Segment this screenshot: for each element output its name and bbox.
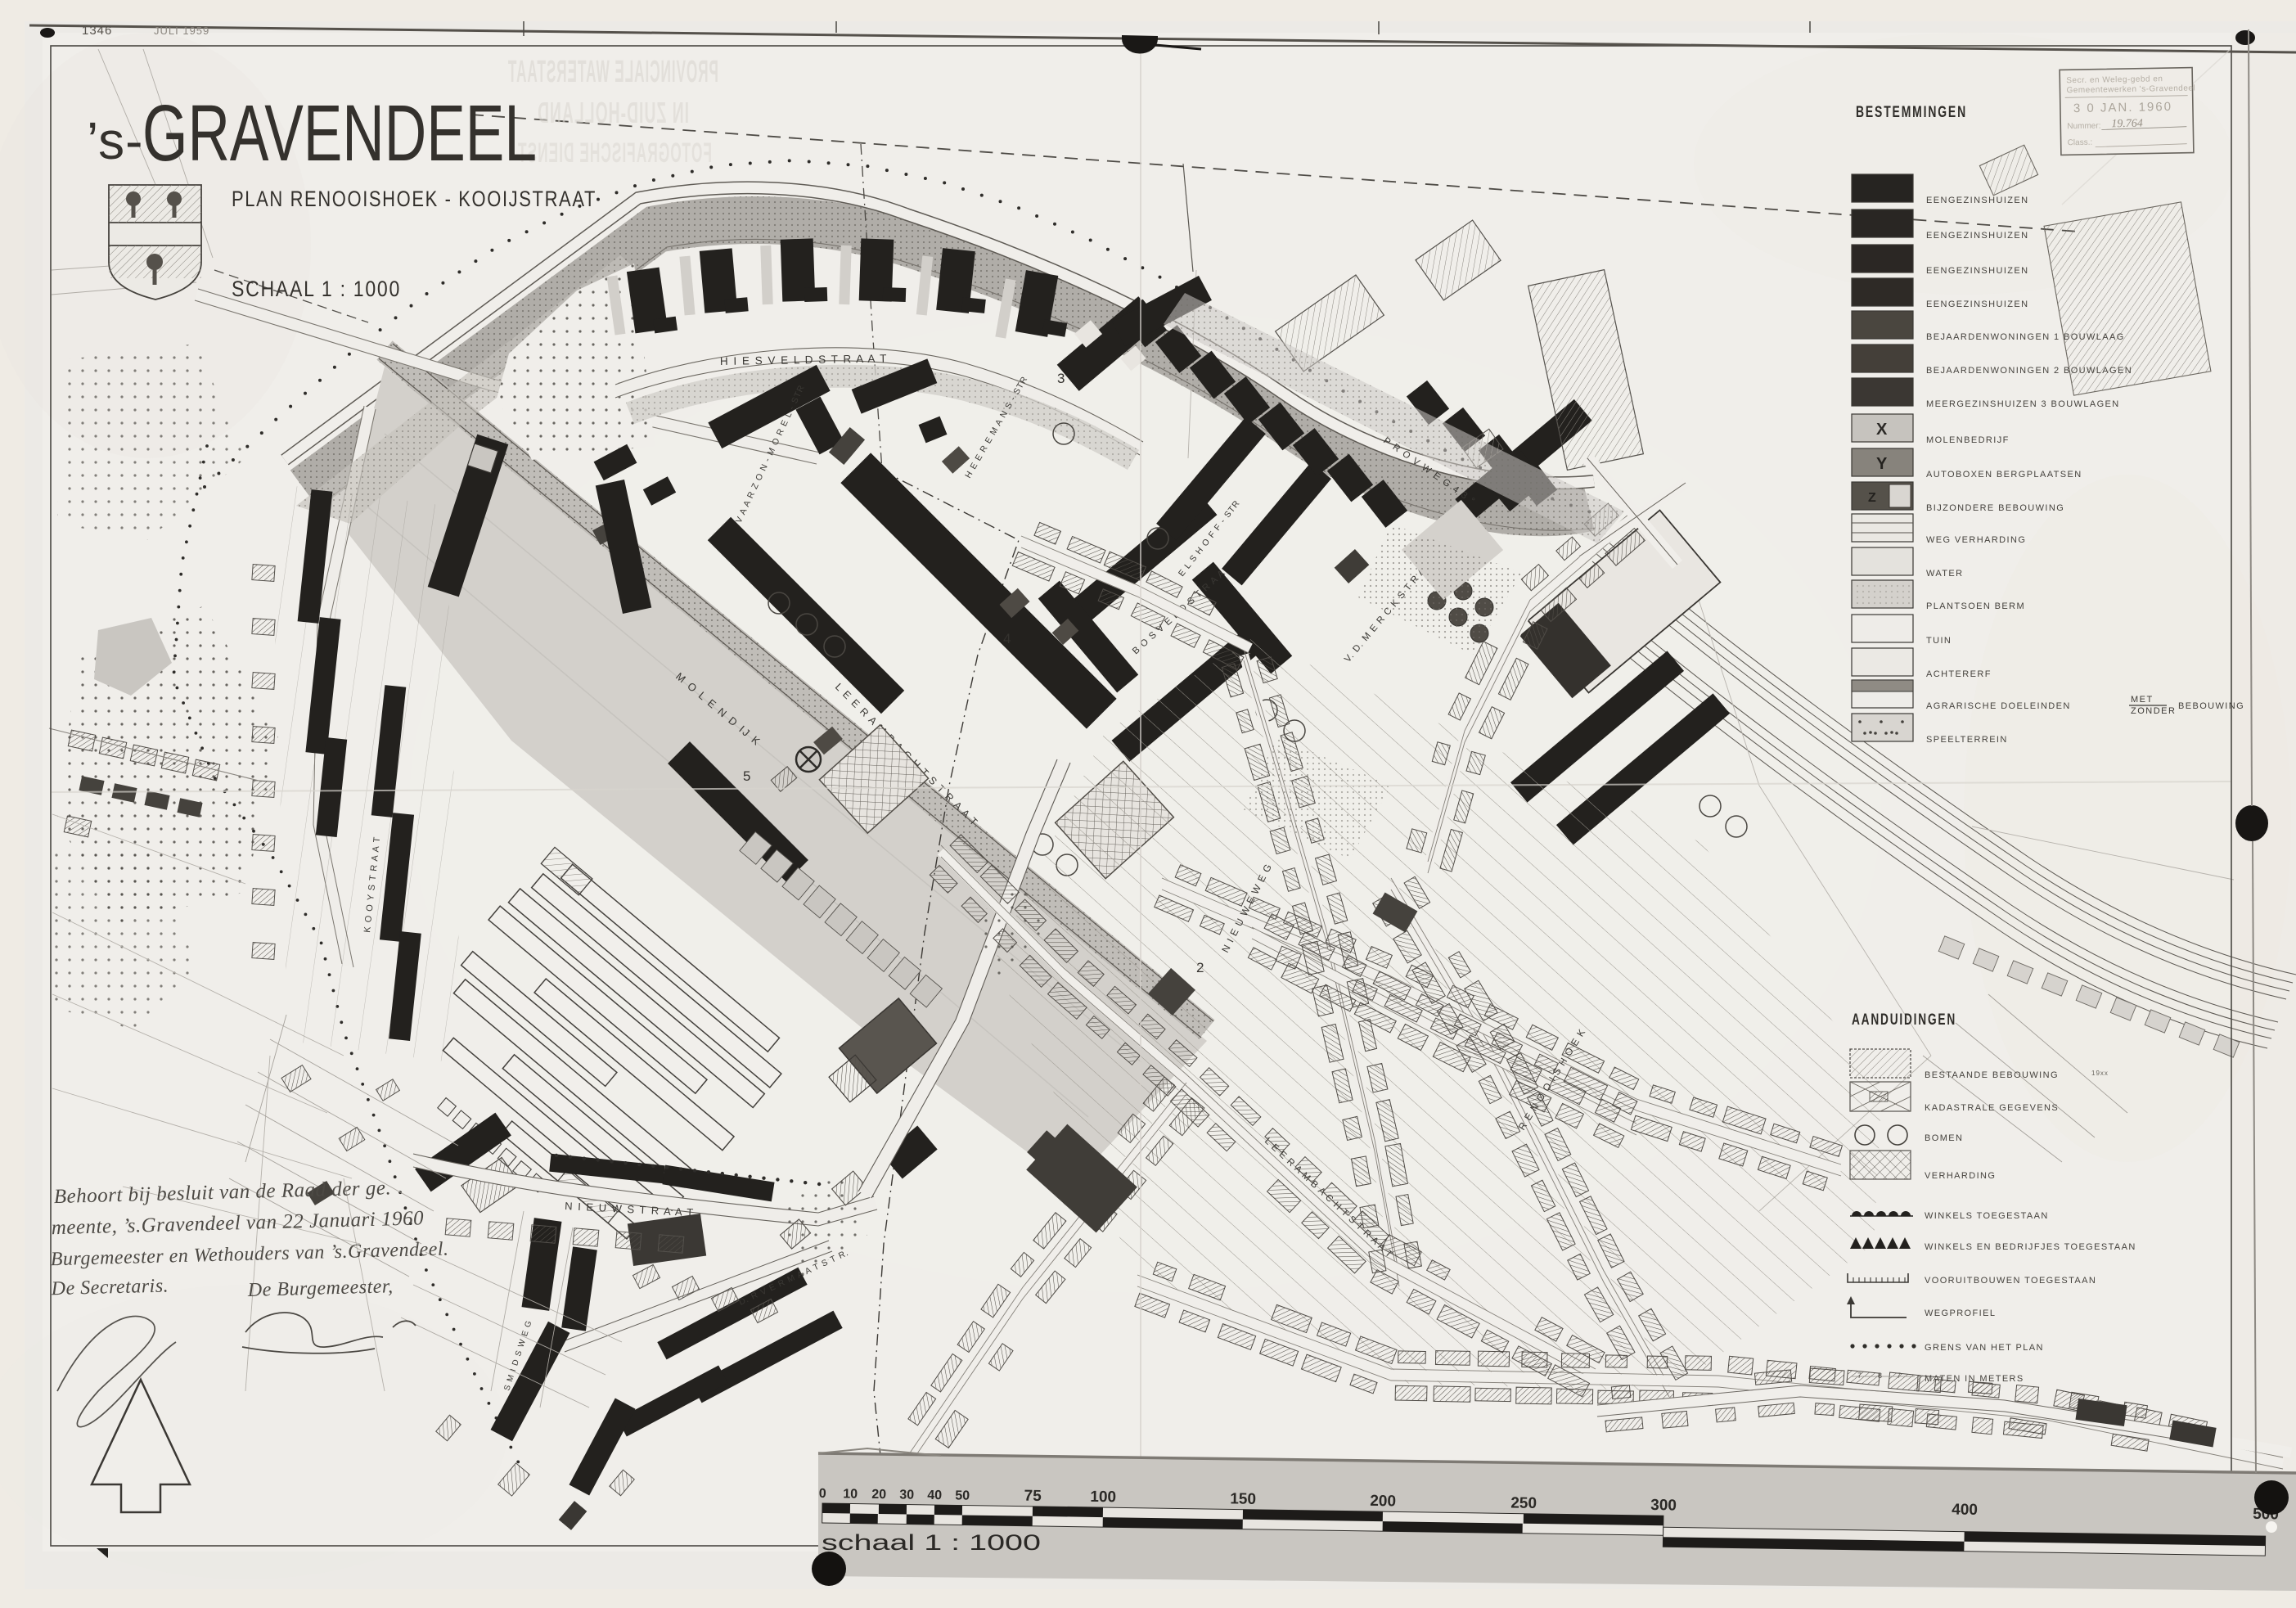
svg-text:Class.:: Class.:	[2068, 138, 2093, 148]
svg-text:0: 0	[819, 1487, 826, 1501]
svg-text:IN ZUID-HOLLAND: IN ZUID-HOLLAND	[537, 96, 689, 129]
svg-text:MEERGEZINSHUIZEN 3 BOUWLA: MEERGEZINSHUIZEN 3 BOUWLAGEN	[1926, 399, 2120, 409]
svg-text:BEBOUWING: BEBOUWING	[2178, 701, 2244, 711]
svg-text:19xx: 19xx	[2091, 1070, 2109, 1077]
svg-text:WATER: WATER	[1926, 569, 1964, 579]
svg-text:EENGEZINSHUIZEN: EENGEZINSHUIZEN	[1926, 196, 2029, 205]
svg-text:SPEELTERREIN: SPEELTERREIN	[1926, 735, 2008, 745]
svg-text:AUTOBOXEN BERGPLAATSEN: AUTOBOXEN BERGPLAATSEN	[1926, 470, 2082, 480]
svg-text:ACHTERERF: ACHTERERF	[1926, 669, 1992, 679]
svg-text:7: 7	[1857, 1372, 1862, 1380]
svg-text:75: 75	[1024, 1488, 1042, 1505]
svg-text:EENGEZINSHUIZEN: EENGEZINSHUIZEN	[1926, 231, 2029, 241]
svg-text:8: 8	[1878, 1372, 1882, 1380]
svg-text:JULI 1959: JULI 1959	[154, 25, 209, 37]
svg-text:MATEN IN METERS: MATEN IN METERS	[1925, 1374, 2024, 1384]
svg-text:X: X	[1876, 421, 1888, 439]
svg-text:PLAN RENOOISHOEK - KOOIJSTRAA: PLAN RENOOISHOEK - KOOIJSTRAAT	[232, 187, 597, 211]
svg-text:300: 300	[1650, 1497, 1677, 1514]
svg-text:schaal 1 : 1000: schaal 1 : 1000	[822, 1530, 1041, 1555]
svg-text:BEJAARDENWONINGEN 2 BOUWLAGE: BEJAARDENWONINGEN 2 BOUWLAGEN	[1926, 366, 2132, 376]
svg-text:VERHARDING: VERHARDING	[1925, 1171, 1996, 1181]
svg-text:3 0 JAN. 1960: 3 0 JAN. 1960	[2073, 100, 2172, 115]
svg-text:250: 250	[1510, 1494, 1537, 1511]
svg-text:FOTOGRAFISCHE DIENST: FOTOGRAFISCHE DIENST	[517, 137, 712, 169]
svg-text:7: 7	[1897, 1372, 1901, 1380]
svg-text:Nummer:: Nummer:	[2067, 122, 2100, 132]
svg-text:Y: Y	[1876, 455, 1888, 473]
svg-text:De Burgemeester,: De Burgemeester,	[247, 1276, 394, 1301]
svg-text:VOORUITBOUWEN TOEGESTAAN: VOORUITBOUWEN TOEGESTAAN	[1925, 1276, 2096, 1286]
svg-text:De Secretaris.: De Secretaris.	[50, 1275, 169, 1299]
svg-text:400: 400	[1952, 1501, 1978, 1518]
svg-text:1346: 1346	[82, 24, 112, 38]
svg-text:’s-: ’s-	[87, 111, 143, 170]
svg-text:AGRARISCHE DOELEINDEN: AGRARISCHE DOELEINDEN	[1926, 701, 2071, 711]
svg-text:100: 100	[1090, 1489, 1116, 1506]
svg-text:EENGEZINSHUIZEN: EENGEZINSHUIZEN	[1926, 300, 2029, 309]
svg-text:KADASTRALE GEGEVENS: KADASTRALE GEGEVENS	[1925, 1103, 2059, 1113]
svg-text:150: 150	[1230, 1490, 1256, 1507]
svg-text:EENGEZINSHUIZEN: EENGEZINSHUIZEN	[1926, 266, 2029, 276]
svg-text:WEGPROFIEL: WEGPROFIEL	[1925, 1308, 1996, 1318]
svg-text:WINKELS EN BEDRIJFJES TOEGES: WINKELS EN BEDRIJFJES TOEGESTAAN	[1925, 1242, 2136, 1252]
svg-text:3: 3	[1057, 371, 1065, 386]
svg-text:AANDUIDINGEN: AANDUIDINGEN	[1852, 1011, 1956, 1029]
svg-text:200: 200	[1370, 1493, 1396, 1510]
svg-text:WEG VERHARDING: WEG VERHARDING	[1926, 535, 2026, 545]
svg-text:30: 30	[899, 1488, 914, 1502]
svg-text:BOMEN: BOMEN	[1925, 1133, 1963, 1143]
svg-text:TUIN: TUIN	[1926, 636, 1952, 646]
svg-text:20: 20	[871, 1488, 886, 1502]
svg-text:Secr. en Weleg-gebd en: Secr. en Weleg-gebd en	[2066, 74, 2163, 85]
svg-text:SCHAAL 1 : 1000: SCHAAL 1 : 1000	[232, 277, 401, 301]
svg-text:ZONDER: ZONDER	[2131, 706, 2176, 716]
svg-text:GRAVENDEEL: GRAVENDEEL	[142, 88, 537, 178]
svg-text:MET: MET	[2131, 695, 2154, 705]
svg-text:BIJZONDERE BEBOUWING: BIJZONDERE BEBOUWING	[1926, 503, 2064, 513]
svg-text:5: 5	[743, 768, 750, 784]
svg-text:PROVINCIALE WATERSTAAT: PROVINCIALE WATERSTAAT	[507, 55, 718, 89]
svg-text:10: 10	[843, 1487, 858, 1501]
svg-text:MOLENBEDRIJF: MOLENBEDRIJF	[1926, 435, 2010, 445]
svg-text:BESTAANDE BEBOUWING: BESTAANDE BEBOUWING	[1925, 1070, 2059, 1080]
svg-text:Z: Z	[1868, 491, 1876, 505]
svg-text:4: 4	[1003, 631, 1011, 646]
svg-text:GRENS VAN HET PLAN: GRENS VAN HET PLAN	[1925, 1343, 2044, 1353]
svg-text:WINKELS TOEGESTAAN: WINKELS TOEGESTAAN	[1925, 1211, 2049, 1221]
svg-text:BESTEMMINGEN: BESTEMMINGEN	[1856, 104, 1967, 121]
svg-text:PLANTSOEN BERM: PLANTSOEN BERM	[1926, 601, 2025, 611]
svg-text:40: 40	[927, 1489, 942, 1502]
svg-text:50: 50	[955, 1489, 970, 1502]
svg-text:BEJAARDENWONINGEN 1 BOUWLAAG: BEJAARDENWONINGEN 1 BOUWLAAG	[1926, 332, 2125, 342]
